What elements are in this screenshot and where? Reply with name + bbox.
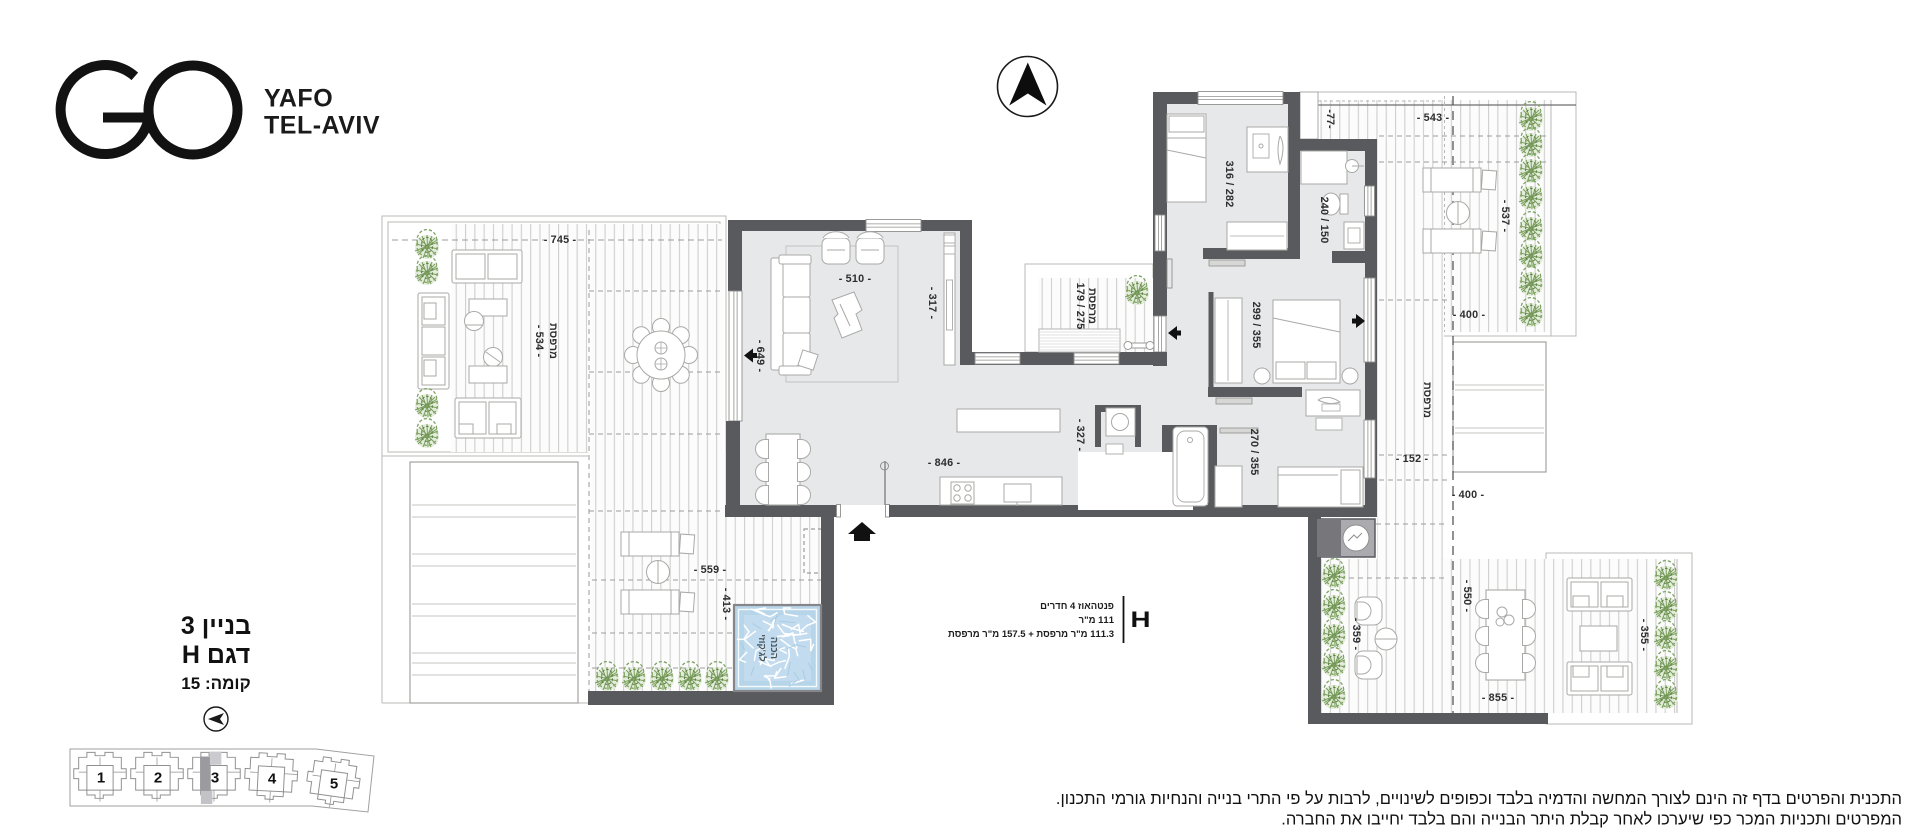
svg-text:5: 5 <box>330 776 338 793</box>
svg-text:- 543 -: - 543 - <box>1417 112 1450 124</box>
svg-text:111.3 מ"ר מרפסת + 157.5 מ"ר מר: 111.3 מ"ר מרפסת + 157.5 מ"ר מרפסת <box>948 629 1114 640</box>
svg-text:316 / 282: 316 / 282 <box>1223 161 1235 208</box>
svg-text:- 327 -: - 327 - <box>1074 419 1086 452</box>
svg-text:לג'קוזי: לג'קוזי <box>756 634 767 661</box>
svg-text:TEL-AVIV: TEL-AVIV <box>264 112 380 140</box>
svg-text:3: 3 <box>211 770 219 787</box>
svg-text:בניין 3: בניין 3 <box>181 612 251 640</box>
svg-text:פנטהאוז 4 חדרים: פנטהאוז 4 חדרים <box>1040 601 1114 612</box>
svg-text:240 / 150: 240 / 150 <box>1318 197 1330 244</box>
svg-text:התכנית והפרטים בדף זה הינם לצו: התכנית והפרטים בדף זה הינם לצורך המחשה ו… <box>1056 790 1902 808</box>
svg-text:111 מ"ר: 111 מ"ר <box>1079 615 1115 626</box>
svg-text:- 534 -: - 534 - <box>533 325 545 358</box>
svg-text:קומה: 15: קומה: 15 <box>181 674 250 693</box>
svg-text:- 550 -: - 550 - <box>1461 580 1473 613</box>
svg-text:270 / 355: 270 / 355 <box>1248 429 1260 476</box>
svg-text:- 855 -: - 855 - <box>1482 692 1515 704</box>
svg-text:-77-: -77- <box>1324 109 1336 129</box>
svg-text:- 559 -: - 559 - <box>694 564 727 576</box>
svg-text:- 846 -: - 846 - <box>928 457 961 469</box>
svg-text:- 510 -: - 510 - <box>839 273 872 285</box>
svg-text:- 317 -: - 317 - <box>926 287 938 320</box>
svg-text:- 745 -: - 745 - <box>544 234 577 246</box>
svg-text:299 / 355: 299 / 355 <box>1250 302 1262 349</box>
svg-text:דגם H: דגם H <box>182 641 250 669</box>
svg-text:4: 4 <box>268 771 277 788</box>
svg-text:מרפסת: מרפסת <box>1421 382 1433 418</box>
svg-text:1: 1 <box>97 770 105 787</box>
svg-text:מרפסת: מרפסת <box>1086 288 1098 324</box>
svg-text:- 400 -: - 400 - <box>1453 309 1486 321</box>
svg-text:מרפסת: מרפסת <box>547 323 559 359</box>
svg-text:- 649 -: - 649 - <box>754 340 766 373</box>
svg-text:YAFO: YAFO <box>264 85 333 113</box>
svg-text:הכנה: הכנה <box>768 637 779 659</box>
svg-text:H: H <box>1131 608 1151 633</box>
svg-text:המפרטים ותכניות המכר כפי שיערכ: המפרטים ותכניות המכר כפי שיערכו לאחר קבל… <box>1281 811 1902 829</box>
svg-text:- 152 -: - 152 - <box>1396 453 1429 465</box>
svg-text:- 400 -: - 400 - <box>1452 489 1485 501</box>
svg-text:- 359 -: - 359 - <box>1350 618 1362 651</box>
svg-text:- 537 -: - 537 - <box>1499 200 1511 233</box>
svg-text:- 413 -: - 413 - <box>720 588 732 621</box>
svg-text:- 355 -: - 355 - <box>1638 619 1650 652</box>
svg-text:2: 2 <box>154 770 162 787</box>
svg-text:179 / 275: 179 / 275 <box>1074 283 1086 330</box>
